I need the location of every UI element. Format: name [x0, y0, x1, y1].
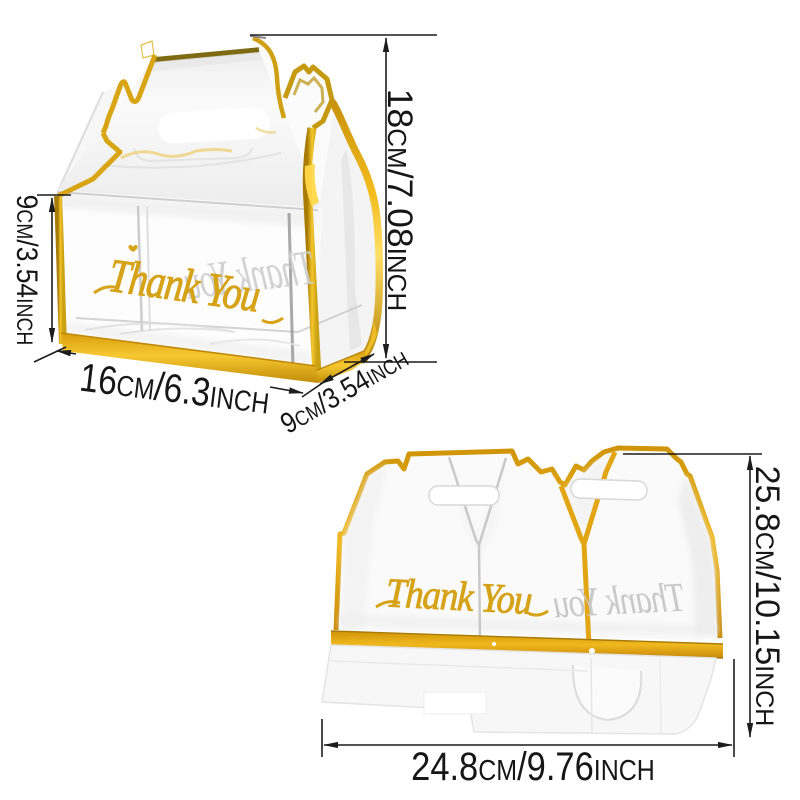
svg-text:Thank You: Thank You	[385, 570, 533, 623]
svg-text:Thank You: Thank You	[552, 575, 686, 627]
